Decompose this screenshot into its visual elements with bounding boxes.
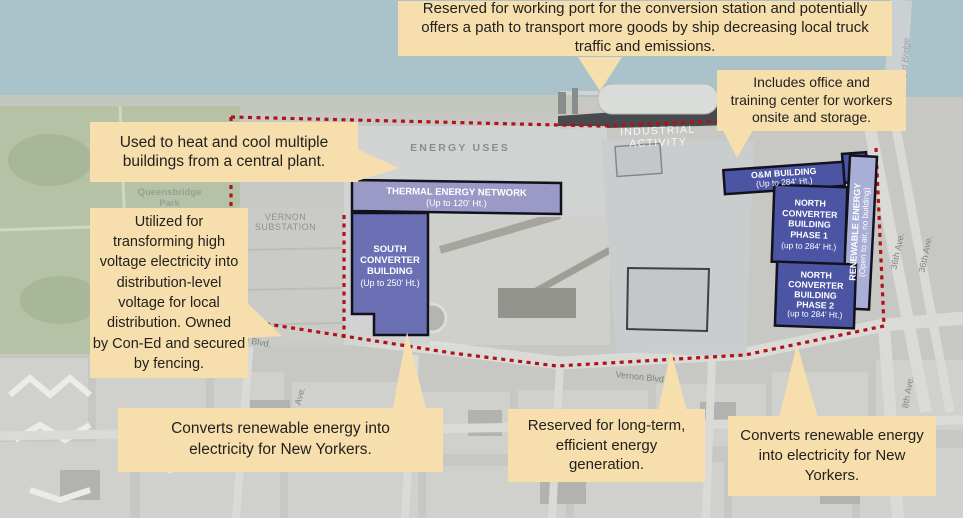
callout-working-port: Reserved for working port for the conver… [398,1,892,56]
callout-converts-south: Converts renewable energy into electrici… [118,408,443,472]
pointer-substation [246,302,282,338]
pointer-long-term [658,351,687,411]
callout-converts-north: Converts renewable energy into electrici… [728,416,936,496]
callout-office-training: Includes office and training center for … [717,70,906,131]
pointer-converts-south [392,332,427,413]
callout-long-term: Reserved for long-term, efficient energy… [508,409,705,482]
pointer-working-port [578,57,622,91]
annotated-site-map: Queensbridge Park VERNON SUBSTATION ENER… [0,0,963,518]
pointer-heat-cool [357,149,399,181]
pointer-converts-north [779,344,818,418]
callout-substation: Utilized for transforming high voltage e… [90,208,248,378]
pointer-office-training [723,130,753,158]
callout-heat-cool: Used to heat and cool multiple buildings… [90,122,358,182]
